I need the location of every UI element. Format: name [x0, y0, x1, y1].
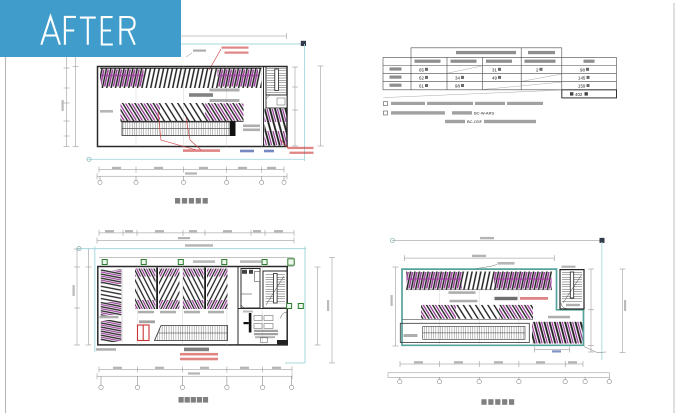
svg-text:159: 159	[578, 84, 586, 89]
svg-text:BC-OSF: BC-OSF	[467, 119, 483, 124]
svg-text:65: 65	[419, 67, 424, 72]
svg-text:49: 49	[492, 75, 497, 80]
svg-text:145: 145	[578, 75, 586, 80]
svg-text:BC-W-ARS: BC-W-ARS	[474, 111, 494, 116]
svg-text:402: 402	[575, 92, 583, 97]
svg-text:31: 31	[492, 67, 497, 72]
svg-text:98: 98	[580, 67, 585, 72]
svg-text:98: 98	[455, 84, 460, 89]
svg-text:61: 61	[419, 84, 424, 89]
svg-text:62: 62	[419, 75, 424, 80]
svg-text:34: 34	[455, 75, 460, 80]
